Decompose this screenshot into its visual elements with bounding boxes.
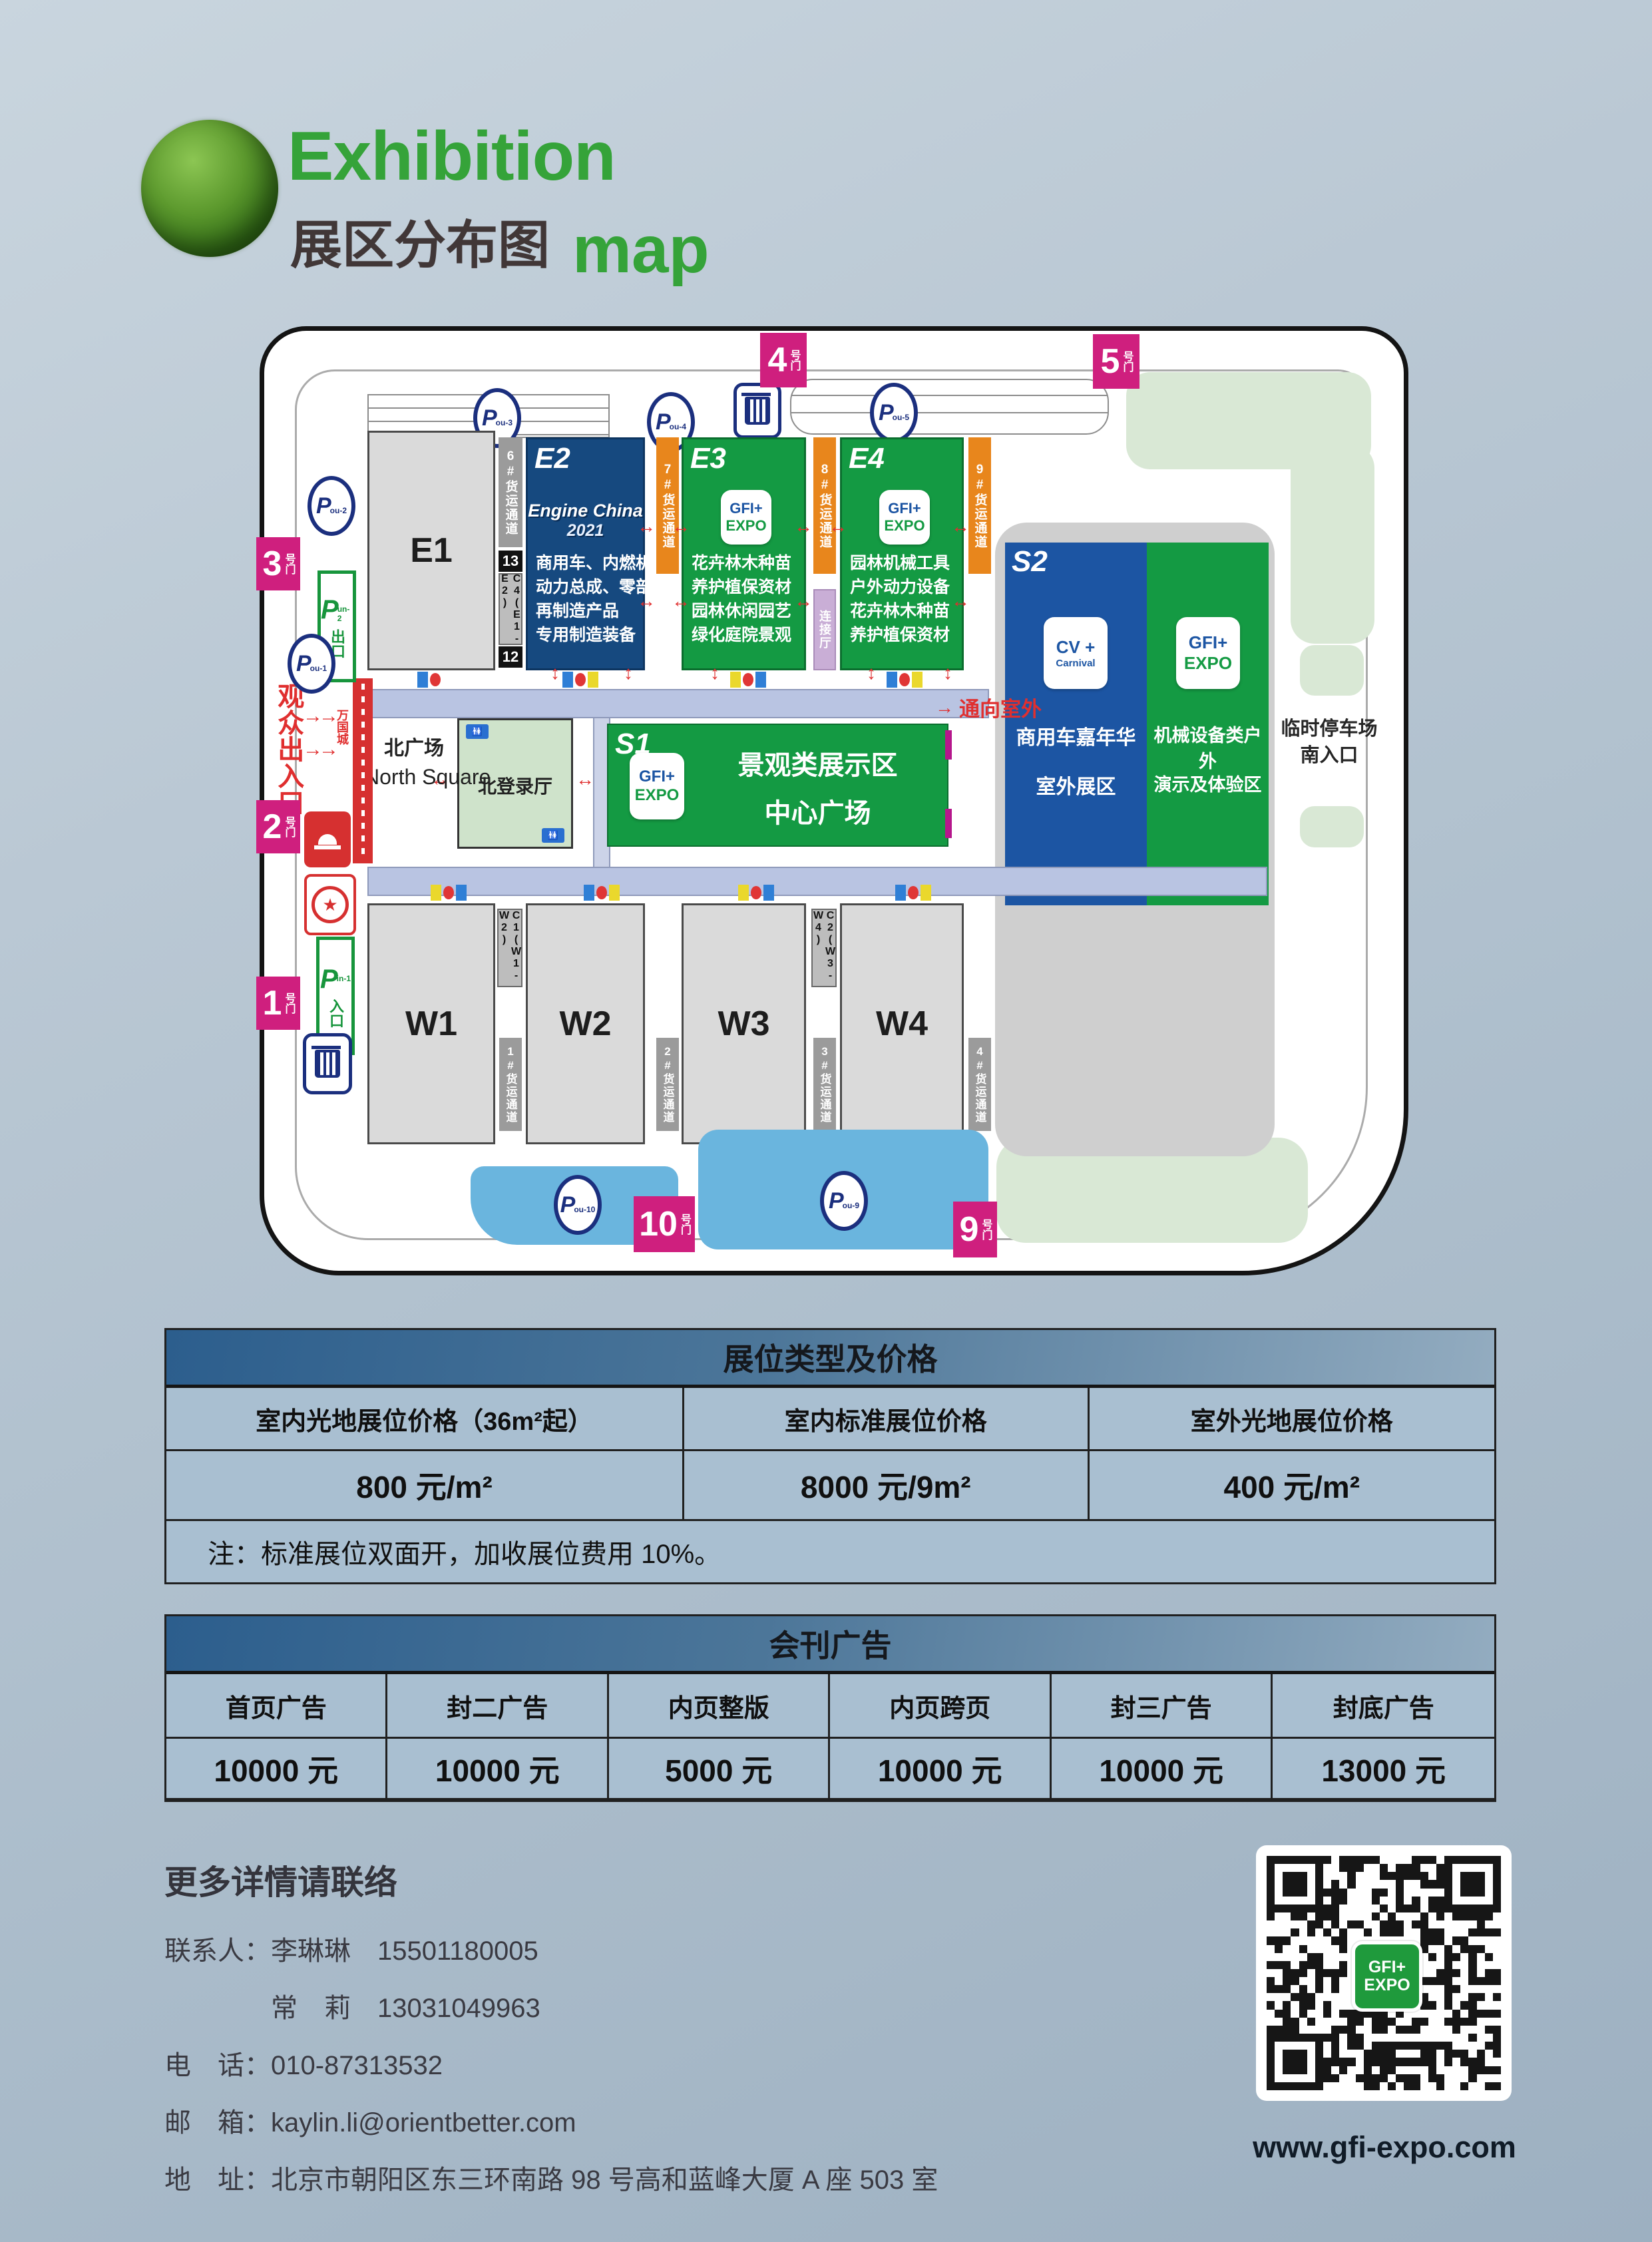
parking-sub: ou-5 [893,413,909,422]
gate-suffix: 号门 [283,553,294,574]
double-arrow-icon: ↔ [794,517,813,536]
hall-e4: E4 GFI+ EXPO 园林机械工具 户外动力设备 花卉林木种苗 养护植保资材 [840,437,964,670]
link-hall: 连接厅 [813,589,836,670]
vertical-arrow-icon: ↕ [550,664,560,682]
alarm-icon [304,811,351,867]
hall-e1-label: E1 [410,531,453,570]
freight-channel-8: 8#货运通道 [813,437,836,574]
double-arrow-icon: ↔ [672,592,690,610]
qr-code: GFI+ EXPO [1256,1845,1512,2101]
gfi-logo-line2: EXPO [725,517,766,535]
gfi-logo-line1: GFI+ [888,500,921,517]
parking-p: P [656,409,671,435]
hall-e3-line: 养护植保资材 [692,575,800,599]
hall-e3-line: 园林休闲园艺 [692,599,800,623]
cv-logo-line1: CV + [1056,637,1096,658]
green-block-right-1 [1300,645,1364,696]
s2-green-line1: 机械设备类户外 [1147,721,1269,773]
facility-icons [895,885,931,901]
gate-suffix: 号门 [283,816,294,837]
qr-grid: GFI+ EXPO [1267,1856,1501,2090]
gfi-expo-logo: GFI+ EXPO [721,490,771,545]
parking-p: P [829,1188,844,1214]
double-arrow-icon: ↔ [951,517,970,536]
entry-arrows-icon: →→ [303,738,335,761]
double-arrow-icon: ↔ [637,517,656,536]
double-arrow-icon: ↔ [951,592,970,610]
booth-price: 800 元/m² [166,1451,684,1521]
parking-sub: ou-3 [496,418,513,427]
freight-channel-7: 7#货运通道 [656,437,679,574]
gfi-logo-line1: GFI+ [1189,632,1228,653]
facility-icons [431,885,467,901]
gate-9: 9号门 [953,1202,997,1257]
booth-table-price-row: 800 元/m² 8000 元/9m² 400 元/m² [166,1451,1494,1521]
ad-col-header: 封二广告 [387,1674,608,1739]
ad-price: 5000 元 [609,1739,830,1800]
s2-green-zone: GFI+ EXPO 机械设备类户外 演示及体验区 [1147,543,1269,905]
hall-e2-line: 专用制造装备 [536,623,639,647]
freight-channel-1: 1#货运通道 [499,1038,522,1131]
facility-icons [417,672,441,688]
booth-price-table: 展位类型及价格 室内光地展位价格（36m²起） 室内标准展位价格 室外光地展位价… [164,1328,1496,1584]
booth-price: 8000 元/9m² [684,1451,1089,1521]
gate-suffix: 号门 [283,993,294,1014]
star-badge-icon: ★ [304,874,356,935]
right-arrow-icon: → [935,698,954,717]
magenta-tick [945,809,952,838]
moss-ball-logo [141,120,278,257]
trash-icon-top [733,383,781,439]
vertical-arrow-icon: ↕ [943,664,952,682]
green-block-right-2 [1300,806,1364,847]
gfi-expo-logo: GFI+ EXPO [1176,617,1240,689]
hall-e2-line: 动力总成、零部件 [536,575,639,599]
trash-icon-bottom [303,1033,352,1094]
wc-icon: 🚻 [542,828,564,843]
hall-w3-label: W3 [718,1004,770,1044]
title-row: 展区分布图 map [290,204,710,278]
gate-suffix: 号门 [679,1214,690,1235]
vertical-arrow-icon: ↕ [867,664,876,682]
connector-c1: C1(W1-W2) [497,909,522,987]
double-arrow-icon: ↔ [829,517,847,536]
gfi-logo-line2: EXPO [635,786,680,805]
contact-line-phone: 电 话：010-87313532 [164,2044,443,2082]
s2-blue-line2: 室外展区 [1005,770,1147,799]
gfi-logo-line1: GFI+ [729,500,763,517]
booth-table-header-row: 室内光地展位价格（36m²起） 室内标准展位价格 室外光地展位价格 [166,1388,1494,1451]
engine-logo-line1: Engine China [528,501,643,521]
north-square-label: 北广场 North Square [364,732,464,789]
parking-in-label: 入口 [325,999,346,1028]
gate-3: 3号门 [256,537,300,590]
hall-s1: S1 GFI+ EXPO 景观类展示区 中心广场 [607,724,948,847]
gfi-logo-line1: GFI+ [639,768,675,786]
green-area-right-band [1291,444,1374,644]
temp-parking-label: 临时停车场 南入口 [1263,716,1396,769]
entry-arrows-icon: →→ [303,705,335,728]
parking-p: P [296,651,311,677]
hall-e4-line: 户外动力设备 [850,575,958,599]
double-arrow-icon: ↔ [576,770,594,789]
parking-sub: ou-2 [330,506,347,515]
north-square-en: North Square [364,765,464,789]
hall-e3-line: 绿化庭院景观 [692,623,800,647]
hall-e2-label: E2 [534,442,570,475]
gfi-logo-line2: EXPO [1184,653,1232,674]
hall-e4-label: E4 [849,442,885,475]
contact-line-email: 邮 箱：kaylin.li@orientbetter.com [164,2101,576,2139]
wc-icon: 🚻 [466,724,489,739]
double-arrow-icon: ↔ [637,592,656,610]
gate-suffix: 号门 [980,1219,990,1240]
ad-col-header: 内页跨页 [830,1674,1051,1739]
cv-carnival-logo: CV + Carnival [1044,617,1108,689]
parking-p: P [560,1192,576,1218]
gate-10: 10号门 [634,1196,695,1252]
parking-p: P [316,493,331,519]
gfi-logo-line2: EXPO [884,517,925,535]
hall-w2: W2 [526,903,645,1144]
tag-12: 12 [499,646,522,668]
website-url: www.gfi-expo.com [1228,2130,1541,2165]
booth-table-title: 展位类型及价格 [166,1330,1494,1388]
journal-ad-table: 会刊广告 首页广告 封二广告 内页整版 内页跨页 封三广告 封底广告 10000… [164,1614,1496,1802]
parking-sub: un-2 [337,604,353,623]
ad-price: 10000 元 [387,1739,608,1800]
contact-line-person1: 联系人：李琳琳 15501180005 [164,1929,538,1968]
hall-e4-line: 园林机械工具 [850,551,958,575]
ad-price: 13000 元 [1273,1739,1494,1800]
s2-blue-line1: 商用车嘉年华 [1005,721,1147,750]
engine-china-logo: Engine China 2021 [528,501,643,541]
gate-number: 5 [1101,346,1120,377]
double-arrow-icon: ↔ [794,592,813,610]
hall-e2: E2 Engine China 2021 商用车、内燃机 动力总成、零部件 再制… [526,437,645,670]
parking-p: P [482,405,497,431]
title-map-word: map [572,222,710,278]
freight-channel-6: 6#货运通道 [499,437,522,547]
parking-p: P [879,400,894,426]
contact-heading: 更多详情请联络 [164,1856,397,1904]
freight-channel-3: 3#货运通道 [813,1038,836,1131]
connector-c2: C2(W3-W4) [811,909,837,987]
gate-number: 10 [639,1209,678,1240]
facility-icons [730,672,766,688]
ad-price: 10000 元 [166,1739,387,1800]
banner-label: 万国城 [333,709,351,745]
double-arrow-icon: ↔ [672,517,690,536]
gate-4: 4号门 [760,333,807,387]
gfi-expo-logo: GFI+ EXPO [630,753,684,819]
to-outdoor-label: → 通向室外 [935,692,1042,722]
gate-5: 5号门 [1093,334,1139,389]
title-chinese: 展区分布图 [290,204,550,278]
gate-number: 1 [263,988,282,1019]
s2-label: S2 [1012,545,1048,578]
s1-line1: 景观类展示区 [702,744,934,782]
hall-e2-line: 再制造产品 [536,599,639,623]
gate-number: 9 [960,1214,979,1245]
vertical-arrow-icon: ↕ [624,664,633,682]
hall-e3-label: E3 [690,442,726,475]
parking-sub: in-1 [337,974,351,983]
parking-p: P [321,595,339,625]
ad-table-title: 会刊广告 [166,1616,1494,1674]
gate-1: 1号门 [256,977,300,1030]
hall-w2-label: W2 [560,1004,612,1044]
booth-col-header: 室内标准展位价格 [684,1388,1089,1451]
gate-number: 3 [263,549,282,580]
hall-e4-line: 花卉林木种苗 [850,599,958,623]
parking-sub: ou-10 [574,1205,595,1214]
ad-col-header: 封三广告 [1052,1674,1273,1739]
parking-pou2-icon: Pou-2 [308,476,355,536]
facility-icons [738,885,774,901]
corridor-upper [367,689,989,718]
booth-table-note: 注：标准展位双面开，加收展位费用 10%。 [166,1521,1494,1582]
audience-entrance-label: 观众出入口 [272,682,304,815]
hall-w4-label: W4 [876,1004,928,1044]
booth-price: 400 元/m² [1090,1451,1494,1521]
gfi-logo-line1: GFI+ [1368,1958,1406,1977]
ad-table-price-row: 10000 元 10000 元 5000 元 10000 元 10000 元 1… [166,1739,1494,1800]
north-square-zh: 北广场 [364,732,464,761]
temp-parking-line2: 南入口 [1263,742,1396,769]
ad-col-header: 封底广告 [1273,1674,1494,1739]
ad-col-header: 首页广告 [166,1674,387,1739]
exhibition-map: 临时停车场 南入口 Pou-3 Pou-4 Pou-5 S2 CV + Carn… [260,326,1408,1275]
title-english: Exhibition [288,117,616,196]
poster-page: Exhibition 展区分布图 map 临时停车场 南入口 Pou-3 Pou… [0,0,1652,2242]
engine-logo-line2: 2021 [528,521,643,541]
parking-pou1-icon: Pou-1 [288,634,335,694]
red-banner [353,678,373,863]
parking-pou9-icon: Pou-9 [820,1171,868,1231]
s2-blue-zone: S2 CV + Carnival 商用车嘉年华 室外展区 [1005,543,1147,905]
gate-suffix: 号门 [1121,351,1132,372]
cv-logo-line2: Carnival [1056,658,1095,669]
parking-p: P [320,965,338,995]
contact-line-person2: 常 莉 13031049963 [164,1986,540,2025]
hall-e4-line: 养护植保资材 [850,623,958,647]
temp-parking-line1: 临时停车场 [1263,716,1396,742]
hall-w1: W1 [367,903,495,1144]
to-outdoor-text: 通向室外 [959,692,1042,722]
hall-w3: W3 [682,903,806,1144]
booth-col-header: 室内光地展位价格（36m²起） [166,1388,684,1451]
parking-pou5-icon: Pou-5 [870,383,918,443]
freight-channel-2: 2#货运通道 [656,1038,679,1131]
contact-line-address: 地 址：北京市朝阳区东三环南路 98 号高和蓝峰大厦 A 座 503 室 [164,2158,938,2197]
facility-icons [562,672,598,688]
gate-number: 2 [263,811,282,843]
parking-sub: ou-1 [310,664,327,673]
tag-13: 13 [499,551,522,572]
connector-c4: C4(E1-E2) [499,573,522,645]
hall-w1-label: W1 [405,1004,457,1044]
ad-col-header: 内页整版 [609,1674,830,1739]
ad-table-header-row: 首页广告 封二广告 内页整版 内页跨页 封三广告 封底广告 [166,1674,1494,1739]
freight-channel-9: 9#货运通道 [968,437,991,574]
booth-col-header: 室外光地展位价格 [1090,1388,1494,1451]
hall-e3-line: 花卉林木种苗 [692,551,800,575]
freight-channel-4: 4#货运通道 [968,1038,991,1131]
gate-suffix: 号门 [788,349,799,371]
hall-e1: E1 [367,431,495,670]
gfi-expo-logo: GFI+ EXPO [1352,1941,1422,2012]
s1-line2: 中心广场 [702,791,934,830]
s2-green-line2: 演示及体验区 [1147,770,1269,796]
hall-e3: E3 GFI+ EXPO 花卉林木种苗 养护植保资材 园林休闲园艺 绿化庭院景观 [682,437,806,670]
hall-e2-line: 商用车、内燃机 [536,551,639,575]
corridor-lower [367,867,1267,896]
ad-price: 10000 元 [830,1739,1051,1800]
top-structure-right [790,379,1109,435]
magenta-tick [945,730,952,760]
gfi-logo-line2: EXPO [1364,1976,1410,1995]
gate-2: 2号门 [256,800,300,853]
vertical-arrow-icon: ↕ [710,664,720,682]
parking-pou10-icon: Pou-10 [554,1175,602,1235]
hall-w4: W4 [840,903,964,1144]
gate-number: 4 [768,345,787,376]
parking-sub: ou-4 [670,422,686,431]
facility-icons [584,885,620,901]
facility-icons [887,672,923,688]
ad-price: 10000 元 [1052,1739,1273,1800]
gfi-expo-logo: GFI+ EXPO [879,490,930,545]
parking-sub: ou-9 [843,1201,859,1210]
